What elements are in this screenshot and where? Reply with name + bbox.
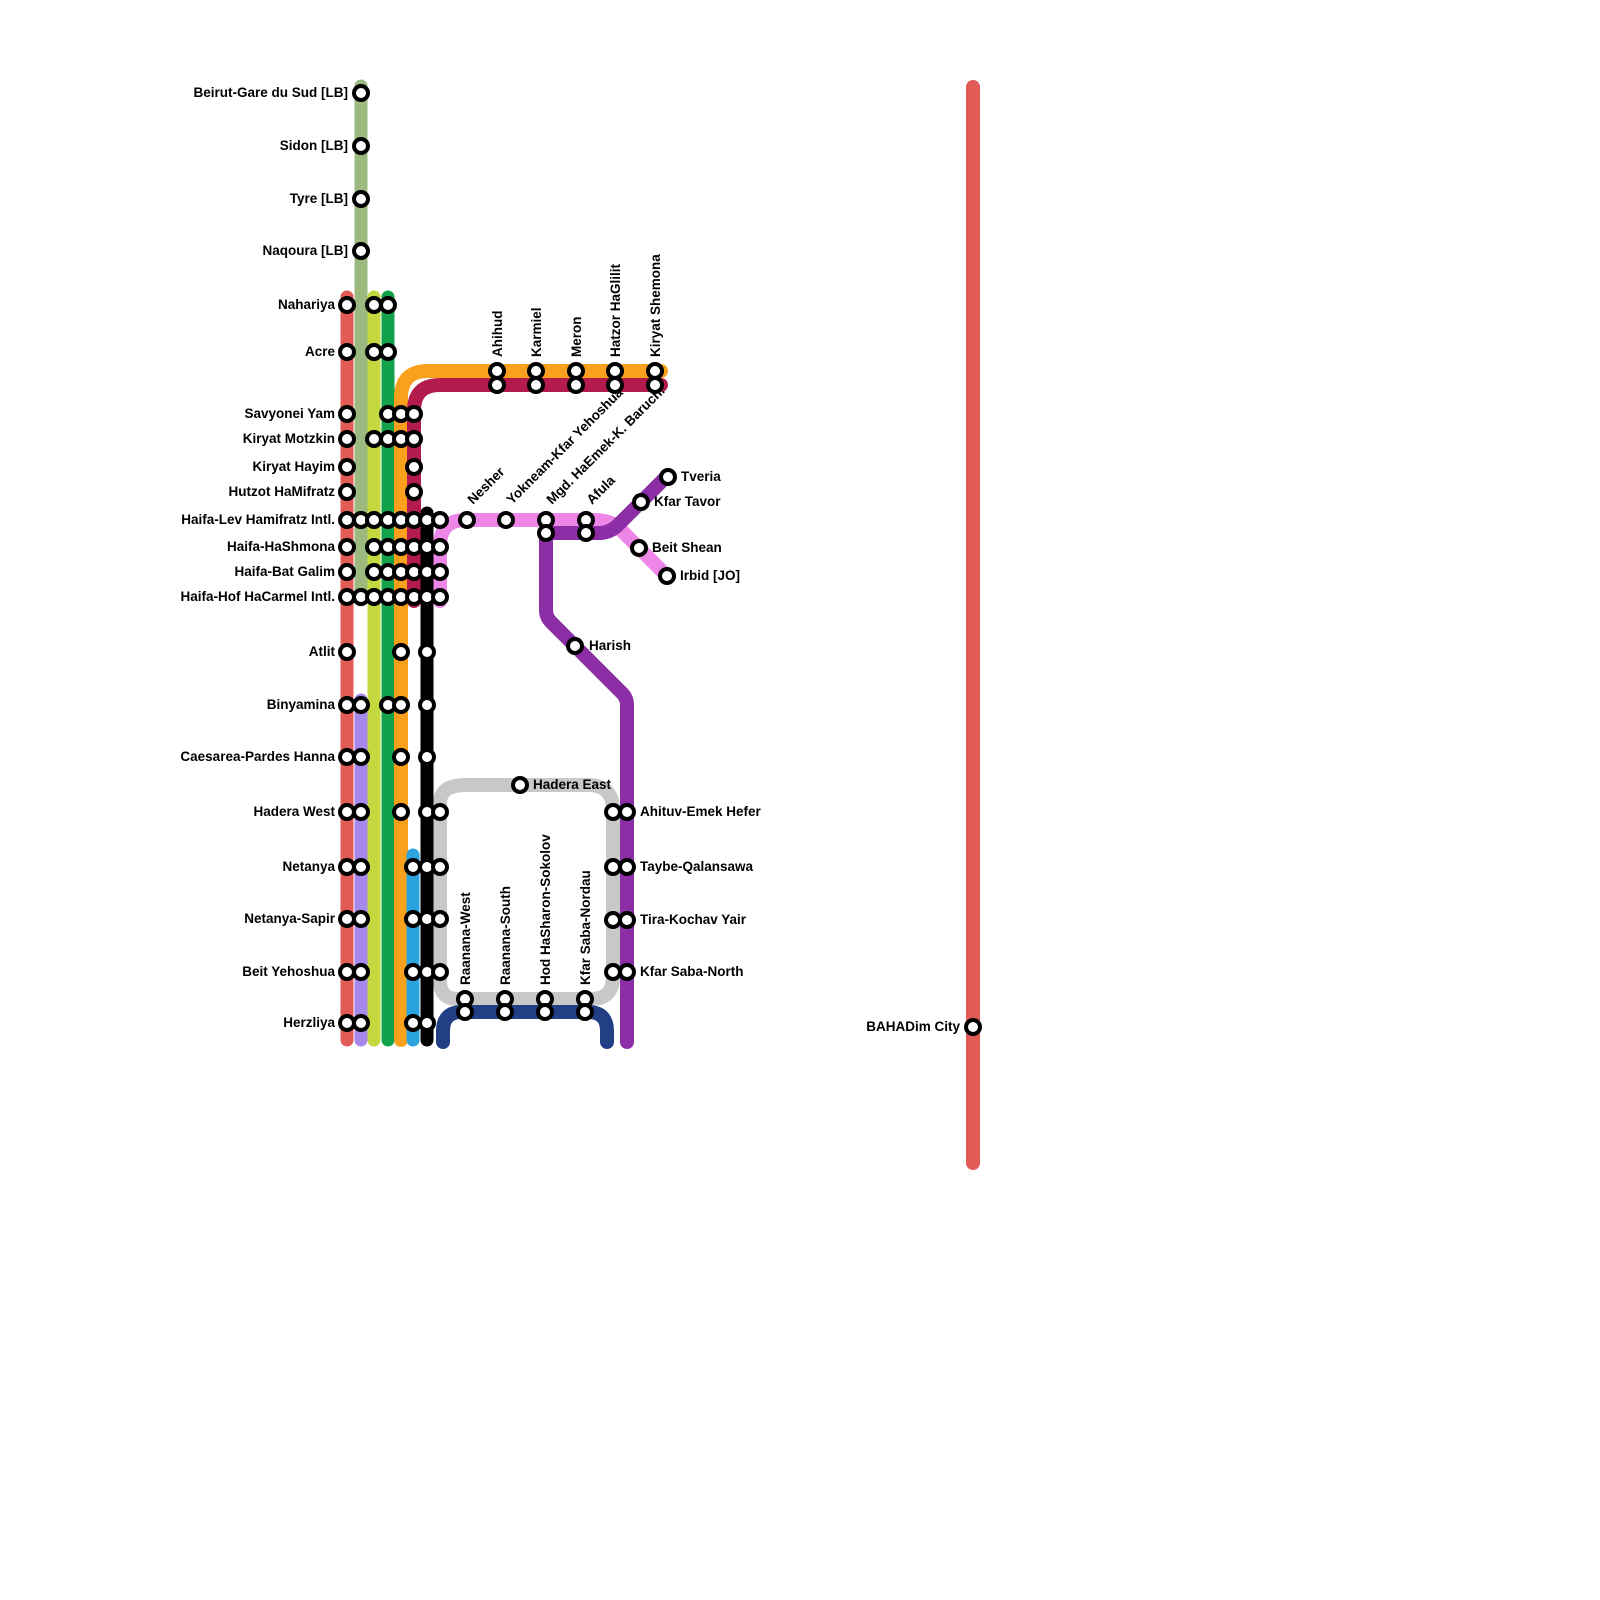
station-marker (340, 912, 354, 926)
station-marker (340, 750, 354, 764)
station-marker (354, 244, 368, 258)
station-label: Raanana-West (458, 892, 473, 985)
station-label: Meron (569, 317, 584, 358)
station-marker (354, 805, 368, 819)
station-marker (340, 485, 354, 499)
station-netanya-sapir: Netanya-Sapir (244, 911, 447, 926)
station-harish: Harish (568, 638, 631, 653)
station-marker (406, 912, 420, 926)
station-marker (367, 540, 381, 554)
station-label: Harish (589, 638, 631, 653)
station-marker (340, 860, 354, 874)
station-marker (367, 565, 381, 579)
station-label: Netanya-Sapir (244, 911, 336, 926)
station-marker (394, 698, 408, 712)
station-marker (381, 345, 395, 359)
station-marker (367, 298, 381, 312)
station-marker (433, 513, 447, 527)
station-label: Nesher (465, 464, 509, 508)
station-label: Tveria (681, 469, 721, 484)
station-netanya: Netanya (282, 859, 447, 874)
station-marker (529, 378, 543, 392)
station-kiryat-motzkin: Kiryat Motzkin (243, 431, 421, 446)
station-tira-kochav-yair: Tira-Kochav Yair (606, 912, 747, 927)
station-marker (490, 364, 504, 378)
station-marker (539, 526, 553, 540)
station-marker (394, 805, 408, 819)
station-marker (606, 860, 620, 874)
station-marker (406, 965, 420, 979)
station-label: Hadera West (253, 804, 335, 819)
station-marker (632, 541, 646, 555)
station-marker (406, 1016, 420, 1030)
station-marker (394, 750, 408, 764)
station-marker (340, 805, 354, 819)
station-label: Raanana-South (498, 886, 513, 985)
station-marker (606, 965, 620, 979)
station-label: Acre (305, 344, 336, 359)
station-marker (648, 364, 662, 378)
station-marker (433, 590, 447, 604)
station-haifa-hashmona: Haifa-HaShmona (227, 539, 447, 554)
station-beit-shean: Beit Shean (632, 540, 722, 555)
station-label: Savyonei Yam (244, 406, 335, 421)
station-marker (458, 1005, 472, 1019)
station-marker (354, 86, 368, 100)
station-marker (340, 460, 354, 474)
station-label: Karmiel (529, 307, 544, 357)
station-label: Haifa-Hof HaCarmel Intl. (180, 589, 335, 604)
station-marker (407, 485, 421, 499)
station-marker (407, 407, 421, 421)
station-label: Ahituv-Emek Hefer (640, 804, 762, 819)
station-marker (367, 345, 381, 359)
station-tyre-lb: Tyre [LB] (290, 191, 368, 206)
station-ahituv-emek-hefer: Ahituv-Emek Hefer (606, 804, 762, 819)
station-marker (420, 750, 434, 764)
station-marker (660, 569, 674, 583)
station-marker (420, 1016, 434, 1030)
station-marker (529, 364, 543, 378)
station-marker (340, 432, 354, 446)
station-marker (433, 565, 447, 579)
station-label: Hatzor HaGlilit (608, 263, 623, 357)
station-raanana-west: Raanana-West (458, 892, 473, 1019)
station-savyonei-yam: Savyonei Yam (244, 406, 421, 421)
station-marker (513, 778, 527, 792)
station-label: Naqoura [LB] (263, 243, 349, 258)
station-marker (606, 805, 620, 819)
station-sidon-lb: Sidon [LB] (280, 138, 368, 153)
station-kfar-tavor: Kfar Tavor (634, 494, 721, 509)
station-haifa-hof-hacarmel-intl: Haifa-Hof HaCarmel Intl. (180, 589, 447, 604)
station-label: Kiryat Shemona (648, 254, 663, 357)
station-label: Sidon [LB] (280, 138, 348, 153)
station-kfar-saba-nordau: Kfar Saba-Nordau (578, 870, 593, 1019)
station-marker (578, 1005, 592, 1019)
station-label: Kfar Tavor (654, 494, 721, 509)
station-label: Tira-Kochav Yair (640, 912, 747, 927)
station-haifa-bat-galim: Haifa-Bat Galim (234, 564, 447, 579)
station-marker (433, 805, 447, 819)
station-marker (433, 860, 447, 874)
station-marker (490, 378, 504, 392)
station-marker (569, 378, 583, 392)
transit-map: Beirut-Gare du Sud [LB]Sidon [LB]Tyre [L… (0, 0, 1600, 1600)
station-marker (634, 495, 648, 509)
station-marker (340, 540, 354, 554)
station-label: Ahihud (490, 311, 505, 358)
station-irbid-jo: Irbid [JO] (660, 568, 740, 583)
station-haifa-lev-hamifratz-intl: Haifa-Lev Hamifratz Intl. (181, 512, 447, 527)
station-marker (433, 540, 447, 554)
station-marker (340, 1016, 354, 1030)
station-marker (620, 805, 634, 819)
transit-map-page: Beirut-Gare du Sud [LB]Sidon [LB]Tyre [L… (0, 0, 1600, 1600)
station-label: Netanya (282, 859, 335, 874)
station-beit-yehoshua: Beit Yehoshua (242, 964, 447, 979)
station-label: Kiryat Hayim (252, 459, 335, 474)
station-label: Tyre [LB] (290, 191, 348, 206)
station-marker (620, 860, 634, 874)
station-label: Hutzot HaMifratz (229, 484, 336, 499)
station-marker (460, 513, 474, 527)
station-marker (340, 345, 354, 359)
station-label: Kiryat Motzkin (243, 431, 335, 446)
station-kiryat-shemona: Kiryat Shemona (648, 254, 663, 392)
station-label: Atlit (309, 644, 336, 659)
station-marker (407, 460, 421, 474)
station-label: Beit Yehoshua (242, 964, 335, 979)
station-ahihud: Ahihud (490, 311, 505, 393)
station-label: Haifa-Lev Hamifratz Intl. (181, 512, 335, 527)
station-marker (367, 590, 381, 604)
station-tveria: Tveria (661, 469, 721, 484)
station-marker (966, 1020, 980, 1034)
station-marker (568, 639, 582, 653)
station-taybe-qalansawa: Taybe-Qalansawa (606, 859, 754, 874)
station-marker (340, 698, 354, 712)
station-naqoura-lb: Naqoura [LB] (263, 243, 369, 258)
station-marker (340, 407, 354, 421)
station-marker (340, 590, 354, 604)
station-label: Kfar Saba-North (640, 964, 744, 979)
station-label: Beit Shean (652, 540, 722, 555)
station-marker (606, 913, 620, 927)
station-label: Afula (584, 472, 619, 507)
station-label: Herzliya (283, 1015, 335, 1030)
station-marker (406, 860, 420, 874)
station-marker (340, 645, 354, 659)
station-marker (620, 913, 634, 927)
station-marker (367, 432, 381, 446)
station-label: Binyamina (267, 697, 336, 712)
station-marker (354, 139, 368, 153)
station-marker (420, 645, 434, 659)
station-label: Beirut-Gare du Sud [LB] (194, 85, 349, 100)
station-label: Haifa-Bat Galim (234, 564, 335, 579)
station-beirut-gare-du-sud-lb: Beirut-Gare du Sud [LB] (194, 85, 369, 100)
station-label: BAHADim City (866, 1019, 960, 1034)
station-yokneam-kfar-yehoshua: Yokneam-Kfar Yehoshua (499, 385, 626, 527)
station-marker (354, 965, 368, 979)
station-label: Irbid [JO] (680, 568, 740, 583)
station-marker (499, 513, 513, 527)
station-marker (420, 698, 434, 712)
station-marker (661, 470, 675, 484)
station-marker (433, 965, 447, 979)
station-marker (340, 565, 354, 579)
station-marker (433, 912, 447, 926)
station-marker (608, 364, 622, 378)
station-marker (579, 526, 593, 540)
station-marker (620, 965, 634, 979)
station-marker (354, 1016, 368, 1030)
station-marker (407, 432, 421, 446)
station-label: Nahariya (278, 297, 336, 312)
station-label: Haifa-HaShmona (227, 539, 336, 554)
station-label: Caesarea-Pardes Hanna (180, 749, 335, 764)
station-marker (340, 965, 354, 979)
station-marker (340, 298, 354, 312)
station-label: Kfar Saba-Nordau (578, 870, 593, 985)
station-marker (367, 513, 381, 527)
station-kfar-saba-north: Kfar Saba-North (606, 964, 744, 979)
station-marker (569, 364, 583, 378)
station-acre: Acre (305, 344, 395, 359)
station-marker (354, 750, 368, 764)
station-marker (354, 912, 368, 926)
station-hadera-west: Hadera West (253, 804, 447, 819)
station-marker (381, 298, 395, 312)
station-hod-hasharon-sokolov: Hod HaSharon-Sokolov (538, 834, 553, 1019)
station-marker (354, 698, 368, 712)
station-karmiel: Karmiel (529, 307, 544, 392)
station-label: Taybe-Qalansawa (640, 859, 754, 874)
station-meron: Meron (569, 317, 584, 393)
station-marker (354, 192, 368, 206)
station-marker (498, 1005, 512, 1019)
station-herzliya: Herzliya (283, 1015, 434, 1030)
station-marker (354, 860, 368, 874)
station-hatzor-haglilit: Hatzor HaGlilit (608, 263, 623, 392)
station-bahadim-city: BAHADim City (866, 1019, 980, 1034)
station-binyamina: Binyamina (267, 697, 434, 712)
station-label: Hadera East (533, 777, 612, 792)
station-nahariya: Nahariya (278, 297, 395, 312)
station-marker (394, 645, 408, 659)
station-caesarea-pardes-hanna: Caesarea-Pardes Hanna (180, 749, 434, 764)
station-marker (538, 1005, 552, 1019)
station-label: Hod HaSharon-Sokolov (538, 834, 553, 985)
station-raanana-south: Raanana-South (498, 886, 513, 1019)
station-marker (340, 513, 354, 527)
